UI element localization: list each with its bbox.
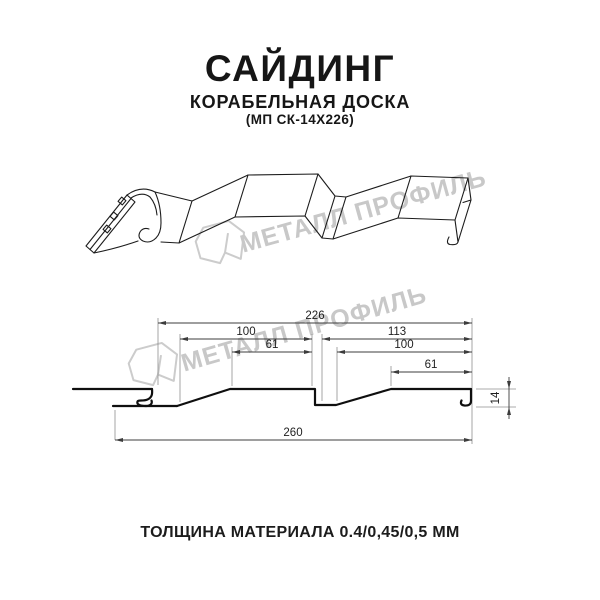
- dim-label-226: 226: [305, 310, 324, 322]
- siding-product-drawing-page: САЙДИНГ КОРАБЕЛЬНАЯ ДОСКА (МП СК-14Х226)…: [0, 0, 600, 600]
- dim-label-100-right: 100: [394, 339, 413, 351]
- dim-label-100-left: 100: [236, 326, 255, 338]
- panel-edge-lines: [179, 174, 471, 243]
- profile-3d-view: [0, 147, 600, 277]
- material-thickness-note: ТОЛЩИНА МАТЕРИАЛА 0.4/0,45/0,5 ММ: [0, 524, 600, 542]
- dim-label-61-right: 61: [425, 359, 438, 371]
- dim-label-260: 260: [283, 427, 302, 439]
- profile-outline: [73, 389, 471, 406]
- panel-outline-front: [161, 216, 458, 245]
- extension-lines: [115, 318, 516, 444]
- cross-section-view: 226 100 113 61 100 61 260 14: [0, 300, 600, 450]
- dim-label-14: 14: [490, 391, 502, 404]
- interlock-curl: [94, 189, 161, 253]
- page-title: САЙДИНГ: [0, 48, 600, 90]
- panel-outline-back: [155, 174, 471, 203]
- dim-label-61-left: 61: [266, 339, 279, 351]
- profile-lock-hook: [137, 389, 152, 406]
- page-subtitle: КОРАБЕЛЬНАЯ ДОСКА: [0, 92, 600, 113]
- model-code: (МП СК-14Х226): [0, 112, 600, 127]
- dim-label-113: 113: [388, 326, 406, 338]
